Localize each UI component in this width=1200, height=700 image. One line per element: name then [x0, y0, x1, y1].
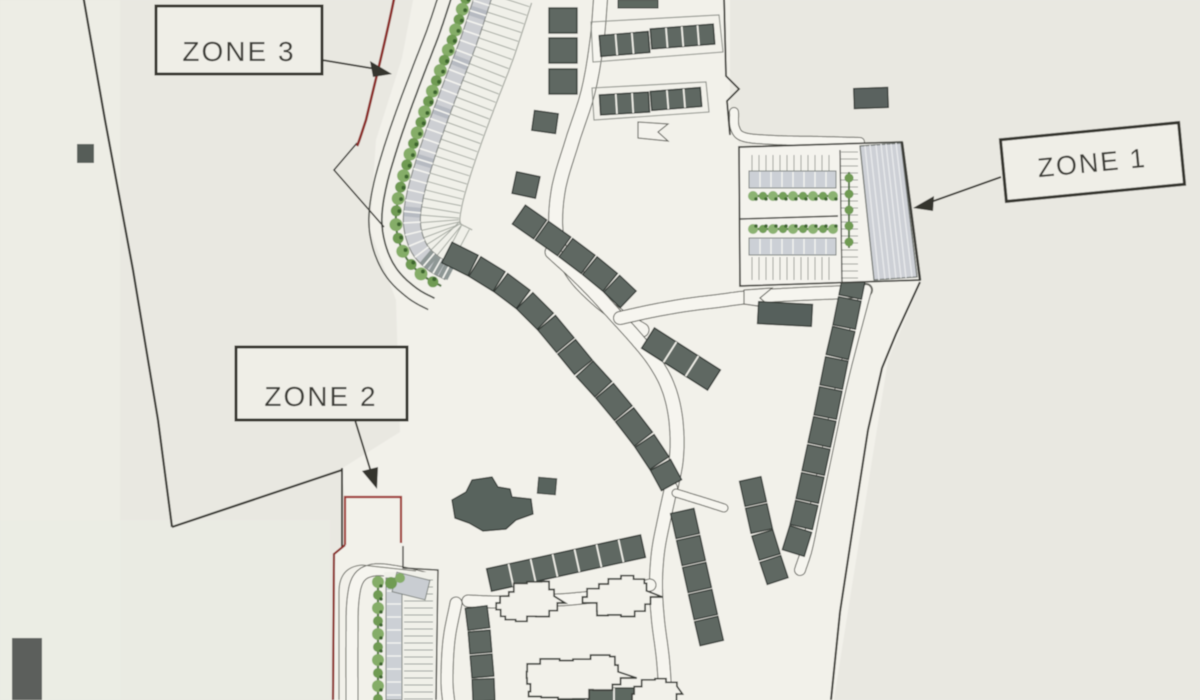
svg-text:ZONE 3: ZONE 3 — [182, 36, 295, 67]
svg-text:ZONE 2: ZONE 2 — [264, 381, 377, 412]
